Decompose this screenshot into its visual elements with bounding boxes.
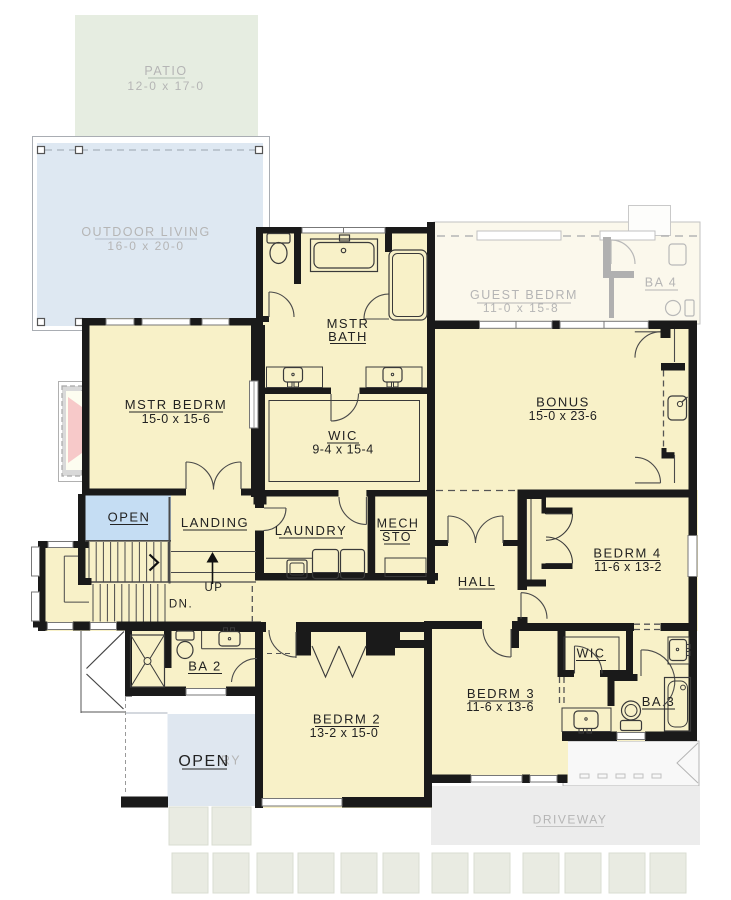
svg-text:11-0 x 15-8: 11-0 x 15-8	[483, 301, 559, 315]
svg-text:BEDRM 4: BEDRM 4	[593, 546, 661, 561]
svg-text:BATH: BATH	[328, 329, 368, 344]
svg-text:UP: UP	[205, 582, 224, 594]
svg-text:OPEN: OPEN	[178, 753, 229, 770]
svg-text:BEDRM 3: BEDRM 3	[467, 686, 535, 701]
svg-text:OUTDOOR LIVING: OUTDOOR LIVING	[81, 225, 210, 239]
svg-text:BEDRM 2: BEDRM 2	[313, 712, 381, 727]
svg-text:11-6 x 13-6: 11-6 x 13-6	[466, 700, 534, 714]
svg-text:BA 3: BA 3	[642, 694, 675, 709]
svg-text:HALL: HALL	[458, 574, 497, 589]
svg-text:GUEST BEDRM: GUEST BEDRM	[470, 288, 578, 302]
svg-text:13-2 x 15-0: 13-2 x 15-0	[310, 726, 379, 740]
svg-text:BA 2: BA 2	[188, 659, 221, 674]
svg-text:LAUNDRY: LAUNDRY	[275, 523, 347, 538]
svg-text:WIC: WIC	[328, 428, 358, 443]
svg-text:LANDING: LANDING	[181, 515, 249, 530]
svg-text:11-6 x 13-2: 11-6 x 13-2	[594, 560, 662, 574]
svg-text:WIC: WIC	[577, 647, 606, 661]
svg-text:MSTR BEDRM: MSTR BEDRM	[125, 397, 227, 412]
svg-text:STO: STO	[382, 530, 412, 544]
svg-text:BONUS: BONUS	[536, 395, 590, 410]
svg-text:DN.: DN.	[169, 599, 193, 611]
svg-text:OPEN: OPEN	[108, 510, 151, 525]
svg-text:15-0 x 23-6: 15-0 x 23-6	[529, 409, 598, 423]
svg-text:PATIO: PATIO	[144, 64, 187, 78]
svg-text:12-0 x 17-0: 12-0 x 17-0	[127, 79, 204, 93]
svg-text:DRIVEWAY: DRIVEWAY	[533, 813, 608, 827]
svg-text:16-0 x 20-0: 16-0 x 20-0	[107, 239, 184, 253]
svg-text:BA 4: BA 4	[645, 276, 677, 290]
svg-text:MECH: MECH	[377, 517, 420, 531]
svg-text:9-4 x 15-4: 9-4 x 15-4	[312, 443, 373, 457]
svg-text:15-0 x 15-6: 15-0 x 15-6	[142, 412, 211, 426]
